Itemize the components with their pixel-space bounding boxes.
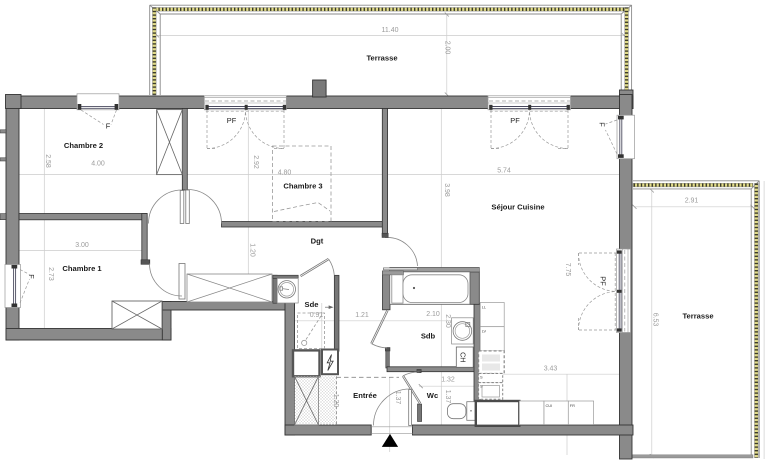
svg-text:Chambre 3: Chambre 3 [283, 181, 322, 190]
svg-text:Terrasse: Terrasse [366, 53, 397, 62]
svg-text:CH: CH [459, 352, 468, 362]
svg-text:3.98: 3.98 [443, 183, 450, 197]
svg-text:Sde: Sde [305, 300, 319, 309]
svg-text:2.00: 2.00 [444, 41, 451, 55]
svg-text:2.73: 2.73 [47, 267, 54, 281]
svg-text:Dgt: Dgt [311, 237, 324, 246]
svg-text:1.37: 1.37 [394, 391, 401, 405]
svg-text:CUI: CUI [546, 403, 553, 408]
svg-text:4.80: 4.80 [278, 169, 292, 176]
svg-text:2.30: 2.30 [444, 314, 451, 328]
svg-text:S: S [480, 384, 483, 389]
svg-text:Terrasse: Terrasse [682, 311, 713, 320]
svg-text:2.92: 2.92 [252, 155, 259, 169]
svg-text:Séjour Cuisine: Séjour Cuisine [491, 202, 544, 211]
svg-text:Wc: Wc [427, 391, 438, 400]
svg-text:4.00: 4.00 [91, 161, 105, 168]
svg-text:5.74: 5.74 [497, 167, 511, 174]
svg-text:7.75: 7.75 [564, 263, 571, 277]
svg-text:2.58: 2.58 [44, 154, 51, 168]
svg-text:2.10: 2.10 [426, 311, 440, 318]
svg-text:6.53: 6.53 [652, 313, 659, 327]
svg-text:F: F [598, 122, 607, 127]
svg-text:11.40: 11.40 [382, 27, 399, 34]
svg-text:FR: FR [570, 403, 575, 408]
svg-text:Chambre 2: Chambre 2 [64, 141, 103, 150]
svg-text:3.43: 3.43 [544, 366, 558, 373]
svg-text:1.37: 1.37 [444, 390, 451, 404]
svg-text:Chambre 1: Chambre 1 [62, 264, 102, 273]
svg-text:LV: LV [482, 329, 487, 334]
svg-text:1.21: 1.21 [355, 312, 369, 319]
svg-text:PF: PF [599, 276, 608, 286]
svg-text:S: S [480, 375, 483, 380]
svg-text:2.91: 2.91 [685, 198, 699, 205]
svg-text:3.00: 3.00 [75, 242, 89, 249]
svg-text:PF: PF [227, 116, 237, 125]
svg-text:Sdb: Sdb [421, 332, 436, 341]
svg-text:1.20: 1.20 [332, 394, 339, 408]
svg-text:1.32: 1.32 [441, 377, 455, 384]
svg-text:Entrée: Entrée [353, 391, 377, 400]
svg-text:1.20: 1.20 [249, 243, 256, 257]
svg-text:F: F [106, 122, 111, 131]
svg-text:F: F [27, 274, 36, 279]
svg-text:0.91: 0.91 [310, 312, 324, 319]
svg-text:PF: PF [510, 116, 520, 125]
